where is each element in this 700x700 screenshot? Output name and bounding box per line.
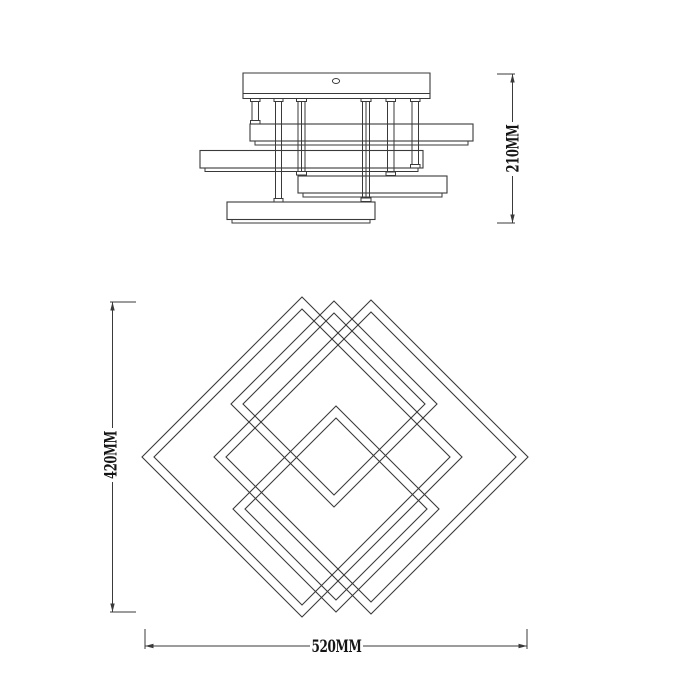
- arrowhead-left-icon: [145, 644, 154, 648]
- canopy-hole: [332, 79, 339, 84]
- arrowhead-up-icon: [510, 74, 514, 83]
- dimension-plan-height: 420MM: [102, 302, 137, 612]
- canopy: [243, 73, 430, 99]
- hanger-rod: [251, 99, 261, 125]
- hanger-rod: [297, 99, 307, 176]
- arrowhead-down-icon: [510, 215, 514, 224]
- ring-inner-edge: [154, 309, 450, 605]
- hanger-rod: [386, 99, 396, 176]
- plan-view: 420MM 520MM: [102, 297, 529, 657]
- dimension-label-420mm: 420MM: [102, 431, 122, 479]
- side-view: 210MM: [200, 73, 524, 223]
- dimension-label-520mm: 520MM: [312, 637, 362, 657]
- dimension-side-height: 210MM: [497, 74, 524, 223]
- arrowhead-right-icon: [519, 644, 528, 648]
- light-bar-level-2: [200, 151, 423, 172]
- light-bar-level-4: [227, 202, 375, 223]
- square-ring-large-right: [214, 300, 528, 614]
- ring-outer-edge: [214, 300, 528, 614]
- arrowhead-up-icon: [110, 302, 114, 311]
- light-bar-level-1: [250, 124, 473, 145]
- light-bars: [200, 124, 473, 223]
- arrowhead-down-icon: [110, 604, 114, 613]
- lamp-dimension-drawing: 210MM: [0, 0, 700, 700]
- hanger-rod: [411, 99, 421, 169]
- light-bar-level-3: [298, 176, 447, 197]
- ring-inner-edge: [226, 312, 516, 602]
- dimension-label-210mm: 210MM: [504, 124, 524, 172]
- technical-drawing-page: 210MM: [0, 0, 700, 700]
- dimension-plan-width: 520MM: [145, 629, 527, 657]
- canopy-body: [243, 73, 430, 99]
